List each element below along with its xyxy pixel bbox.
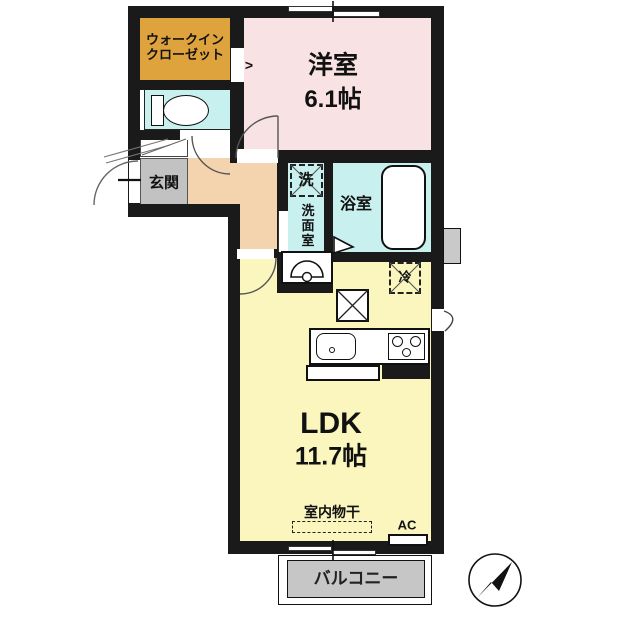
doorway-washroom xyxy=(278,211,288,252)
ac-label: AC xyxy=(398,519,417,534)
counter-lower-strip xyxy=(306,365,380,381)
wall-western-bottom xyxy=(276,150,432,163)
kitchen-back-door-arc xyxy=(444,311,453,331)
doorway-toilet xyxy=(180,131,230,140)
wall-bath-bottom xyxy=(324,252,432,262)
window-top-right-pane xyxy=(333,11,380,17)
western-room-size: 6.1帖 xyxy=(304,86,361,114)
bathroom-label: 浴室 xyxy=(340,196,372,214)
floorplan-page: { "colors": { "wall": "#1a1a1a", "wic": … xyxy=(0,0,637,640)
wall-left-main xyxy=(228,207,240,554)
ldk-label: LDK xyxy=(300,407,362,442)
doorway-wic xyxy=(231,48,244,82)
wall-right xyxy=(431,6,444,554)
wall-wic-right xyxy=(230,18,244,163)
compass-needle xyxy=(477,562,512,598)
window-balcony-left-pane xyxy=(288,546,332,551)
cupboard-box xyxy=(336,289,369,322)
washroom-label: 洗面室 xyxy=(299,204,314,249)
wall-top xyxy=(128,6,444,18)
doorway-ldk xyxy=(237,249,274,259)
ldk-size: 11.7帖 xyxy=(295,443,367,472)
balcony-label: バルコニー xyxy=(314,569,399,589)
wall-washbasin-bottom xyxy=(277,283,333,293)
doorway-western xyxy=(237,149,278,163)
bathtub xyxy=(381,165,426,250)
washer-label: 洗 xyxy=(298,171,313,188)
wic-label-line1: ウォークイン xyxy=(146,33,224,48)
wic-door-symbol: > xyxy=(245,57,253,73)
drying-label: 室内物干 xyxy=(304,504,360,520)
western-room xyxy=(244,18,431,150)
kitchen-sink xyxy=(316,333,356,360)
stove-burner-3 xyxy=(402,348,411,357)
window-top-left-pane xyxy=(288,6,333,12)
hallway-upper xyxy=(188,158,283,207)
doorway-kitchen-back xyxy=(432,309,444,331)
wall-entrance-bottom xyxy=(128,204,240,217)
doorway-entrance xyxy=(129,160,140,203)
wall-wic-bottom xyxy=(140,80,232,90)
refrigerator-label: 冷 xyxy=(398,271,411,286)
drying-rail xyxy=(292,521,372,533)
stove-burner-2 xyxy=(410,336,421,347)
entrance-label: 玄関 xyxy=(149,174,179,191)
stove-burner-1 xyxy=(392,336,403,347)
ac-unit xyxy=(388,534,428,546)
wall-wash-bath-divider xyxy=(324,162,333,262)
toilet-bowl xyxy=(163,95,209,126)
washbasin-box xyxy=(281,251,333,284)
water-heater xyxy=(443,228,461,264)
compass-icon xyxy=(466,551,524,609)
sink-drain xyxy=(329,347,335,353)
wall-toilet-bottom xyxy=(134,130,180,140)
western-room-label: 洋室 xyxy=(308,52,358,81)
wic-label: ウォークイン クローゼット xyxy=(146,33,224,63)
wall-kitchen-block xyxy=(382,365,430,379)
wic-label-line2: クローゼット xyxy=(146,48,224,63)
